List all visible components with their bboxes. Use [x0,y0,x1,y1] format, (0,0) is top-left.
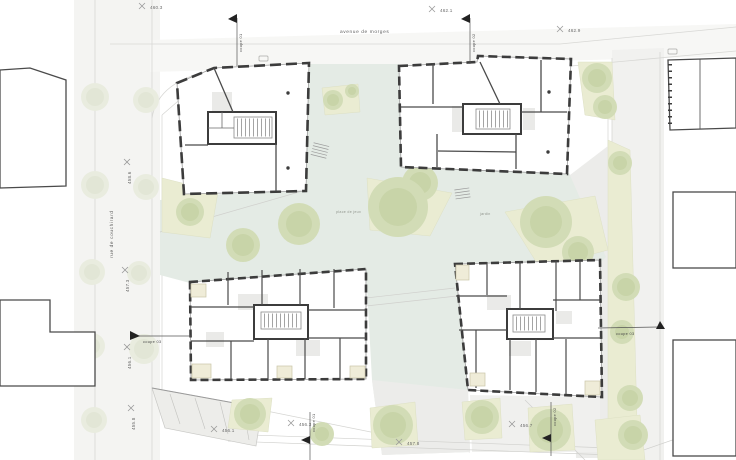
neighbor-building [668,58,736,130]
tree-icon [582,63,612,93]
survey-cross-icon [288,420,294,426]
tree-icon [618,420,648,450]
tree-icon [176,198,204,226]
column-dot [286,166,289,169]
tree-icon [81,407,107,433]
street-name-left: rue de couchirard [109,210,115,258]
elevation-label: 458.6 [127,171,132,184]
column-dot [546,150,549,153]
left-street [74,0,160,460]
tree-icon [617,385,643,411]
tree-icon [608,151,632,175]
tree-icon [81,171,109,199]
section-label: coupe 02 [471,34,476,52]
street-name-top: avenue de morges [340,29,389,35]
building-c-floorplan [190,269,366,380]
neighbor-building [673,192,736,268]
tree-icon [234,398,266,430]
elevation-label: 455.8 [131,417,136,430]
survey-cross-icon [429,6,435,12]
elevation-label: 456.1 [127,356,132,369]
area-label: place de jeux [336,210,361,214]
tree-icon [81,83,109,111]
elevation-label: 462.9 [568,28,581,33]
tree-icon [133,174,159,200]
tree-icon [345,84,359,98]
building-a-floorplan [177,63,309,194]
building-b-floorplan [399,56,571,174]
building-d-floorplan [455,260,602,397]
section-label: coupe 01 [311,414,316,432]
tree-icon [520,196,572,248]
tree-icon [612,273,640,301]
site-plan-page: coupe 01 coupe 02 coupe 03 coupe 01 coup… [0,0,736,460]
column-dot [547,90,550,93]
elevation-label: 462.1 [440,8,453,13]
tree-icon [373,405,413,445]
section-label: coupe 03 [143,339,161,344]
elevation-label: 456.1 [222,428,235,433]
tree-icon [593,95,617,119]
site-plan-drawing: coupe 01 coupe 02 coupe 03 coupe 01 coup… [0,0,736,460]
tree-icon [368,177,428,237]
tree-icon [79,259,105,285]
column-dot [286,91,289,94]
tree-icon [529,409,571,451]
elevation-label: 457.8 [407,441,420,446]
area-label: jardin [479,212,491,216]
elevation-label: 456.7 [520,423,533,428]
neighbor-building [673,340,736,456]
elevation-label: 460.3 [150,5,163,10]
section-label: coupe 03 [616,331,634,336]
tree-icon [127,261,151,285]
elevation-label: 457.3 [125,279,130,292]
neighbor-building [0,68,66,188]
tree-icon [465,400,499,434]
tree-icon [278,203,320,245]
section-label: coupe 02 [552,408,557,426]
elevation-label: 456.3 [299,422,312,427]
section-label: coupe 01 [238,34,243,52]
tree-icon [133,87,159,113]
tree-icon [226,228,260,262]
tree-icon [323,90,343,110]
